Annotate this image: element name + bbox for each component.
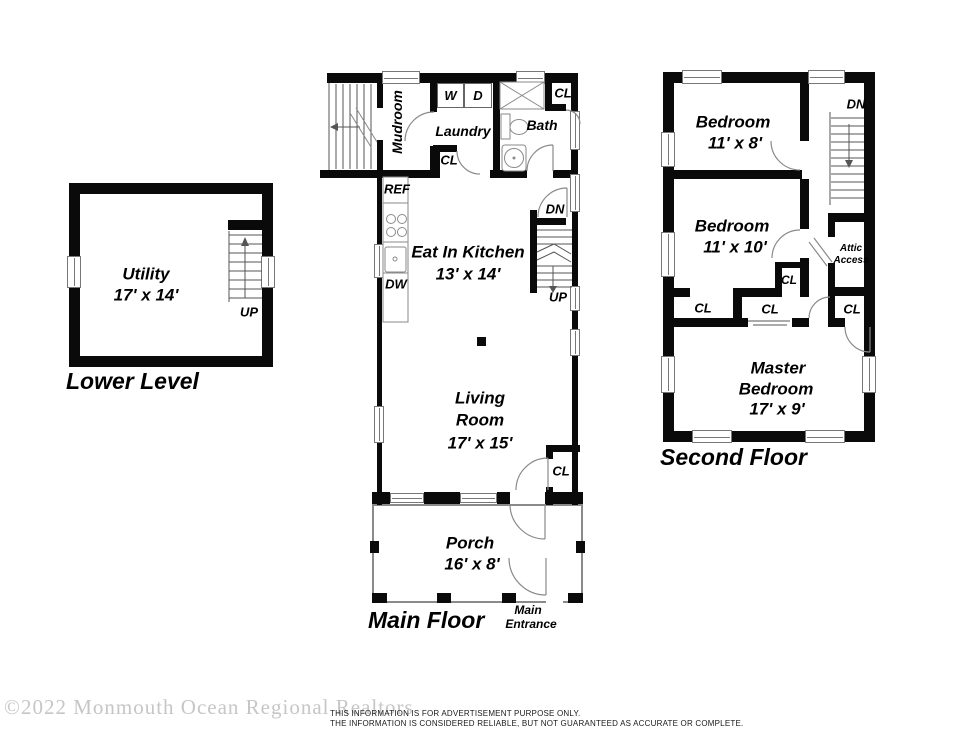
bath-door-arc xyxy=(527,145,553,171)
window xyxy=(374,406,384,443)
floor-plan-canvas: W D Utility 17' x 14' UP Lower Level Mud… xyxy=(0,0,960,741)
bath-label: Bath xyxy=(526,118,557,132)
wall xyxy=(828,213,835,237)
wall xyxy=(800,258,809,297)
wall xyxy=(800,179,809,229)
window xyxy=(390,493,424,503)
kitchen-label: Eat In Kitchen xyxy=(411,244,524,261)
bath-closet-label: CL xyxy=(554,87,571,100)
main-entrance-label1: Main xyxy=(514,604,541,616)
living-room-label2: Room xyxy=(456,412,504,429)
window xyxy=(805,430,845,443)
window xyxy=(862,356,876,393)
exterior-stairs xyxy=(329,83,377,170)
closet-center-label: CL xyxy=(761,303,778,316)
window xyxy=(570,174,580,212)
closet-left-label: CL xyxy=(694,302,711,315)
wall xyxy=(493,83,500,171)
utility-room-label: Utility xyxy=(122,266,169,283)
window xyxy=(692,430,732,443)
wall xyxy=(477,337,486,346)
wall xyxy=(69,356,273,367)
bedroom1-dims: 11' x 8' xyxy=(708,135,762,152)
attic-access-door xyxy=(814,238,832,262)
mudroom-label: Mudroom xyxy=(390,90,404,154)
wall xyxy=(792,318,809,327)
wall xyxy=(663,288,690,297)
window xyxy=(570,286,580,311)
laundry-label: Laundry xyxy=(435,124,490,138)
second-stairs xyxy=(830,112,864,205)
wall xyxy=(377,140,383,171)
disclaimer-line2: THE INFORMATION IS CONSIDERED RELIABLE, … xyxy=(330,719,743,728)
bedroom1-label: Bedroom xyxy=(696,114,771,131)
wall xyxy=(437,593,451,603)
mudroom-door-arc xyxy=(405,112,434,141)
bedroom2-door-arc xyxy=(772,230,800,258)
up-arrow-icon xyxy=(241,237,249,246)
main-floor-title: Main Floor xyxy=(368,609,484,632)
disclaimer-line1: THIS INFORMATION IS FOR ADVERTISEMENT PU… xyxy=(330,709,580,718)
closet-small-label: CL xyxy=(781,274,797,286)
wall xyxy=(377,170,440,178)
bedroom2-dims: 11' x 10' xyxy=(703,239,767,256)
wall xyxy=(870,318,875,327)
kitchen-sink-icon xyxy=(385,247,406,272)
wall xyxy=(377,83,383,108)
window xyxy=(661,132,675,167)
wall xyxy=(490,170,527,178)
living-closet-label: CL xyxy=(552,465,569,478)
main-up-label: UP xyxy=(549,291,567,304)
wall xyxy=(833,213,875,222)
utility-room-dims: 17' x 14' xyxy=(114,287,179,304)
window xyxy=(661,232,675,277)
stair-arrow-icon xyxy=(330,123,338,131)
master-bedroom-dims: 17' x 9' xyxy=(749,401,804,418)
window xyxy=(261,256,275,288)
second-dn-label: DN xyxy=(847,98,866,111)
hall-master-door-arc xyxy=(809,297,830,318)
closet-right-label: CL xyxy=(843,303,860,316)
attic-access-label2: Access xyxy=(833,256,868,266)
wall xyxy=(377,170,382,505)
wall xyxy=(568,593,583,603)
wall xyxy=(502,593,516,603)
window xyxy=(67,256,81,288)
living-closet-door-arc xyxy=(516,458,548,490)
stove-icon xyxy=(387,215,407,237)
wall xyxy=(552,104,566,111)
main-dn-label: DN xyxy=(546,203,565,216)
wall xyxy=(800,83,809,141)
window xyxy=(374,244,384,278)
stair-break-icon xyxy=(537,244,571,254)
wall xyxy=(372,492,390,504)
master-bedroom-label2: Bedroom xyxy=(739,381,814,398)
wall xyxy=(533,218,566,225)
laundry-closet-label: CL xyxy=(440,154,457,167)
wall xyxy=(833,287,875,296)
wall xyxy=(497,492,510,504)
wall xyxy=(370,541,379,553)
shower-icon xyxy=(500,82,544,109)
ref-label: REF xyxy=(384,183,410,196)
wall xyxy=(828,263,835,287)
washer-label: W xyxy=(444,88,456,103)
window xyxy=(460,493,497,503)
wall xyxy=(433,145,457,152)
wall xyxy=(69,183,273,194)
wall xyxy=(545,492,583,504)
lower-stairs xyxy=(229,231,262,302)
lower-level-title: Lower Level xyxy=(66,370,199,393)
wall xyxy=(372,593,387,603)
kitchen-counter xyxy=(383,177,408,322)
window xyxy=(570,111,580,150)
laundry-closet-door-arc xyxy=(457,151,480,174)
porch-label: Porch xyxy=(446,535,494,552)
attic-access-label1: Attic xyxy=(840,244,862,254)
dn-arrow-icon xyxy=(845,160,853,168)
master-bedroom-label1: Master xyxy=(751,360,806,377)
bath-sink-icon xyxy=(502,145,526,171)
dryer-label: D xyxy=(473,88,482,103)
window xyxy=(808,70,845,84)
kitchen-dims: 13' x 14' xyxy=(436,266,501,283)
wall xyxy=(320,170,378,178)
wall xyxy=(546,445,553,459)
porch-dims: 16' x 8' xyxy=(444,556,499,573)
porch-walls xyxy=(372,504,583,603)
wall xyxy=(775,262,801,268)
bedroom2-label: Bedroom xyxy=(695,218,770,235)
living-room-label1: Living xyxy=(455,390,505,407)
window xyxy=(516,71,545,84)
washer-box: W xyxy=(437,83,464,108)
toilet-icon xyxy=(501,114,528,139)
living-room-dims: 17' x 15' xyxy=(448,435,513,452)
wall xyxy=(430,83,437,112)
dw-label: DW xyxy=(385,278,407,291)
wall xyxy=(228,220,262,230)
kitchen-fixtures xyxy=(383,177,408,322)
wall xyxy=(663,170,802,179)
wall xyxy=(576,541,585,553)
window xyxy=(570,329,580,356)
window xyxy=(382,71,420,84)
wall xyxy=(663,318,748,327)
main-entrance-label2: Entrance xyxy=(505,618,556,630)
lower-up-label: UP xyxy=(240,306,258,319)
wall xyxy=(424,492,460,504)
window xyxy=(682,70,722,84)
bedroom1-door-arc xyxy=(771,141,800,170)
window xyxy=(661,356,675,393)
wall xyxy=(545,73,552,111)
main-stairs xyxy=(537,230,572,293)
main-entrance-door-gap xyxy=(546,598,563,605)
second-floor-title: Second Floor xyxy=(660,446,807,469)
dryer-box: D xyxy=(464,83,492,108)
